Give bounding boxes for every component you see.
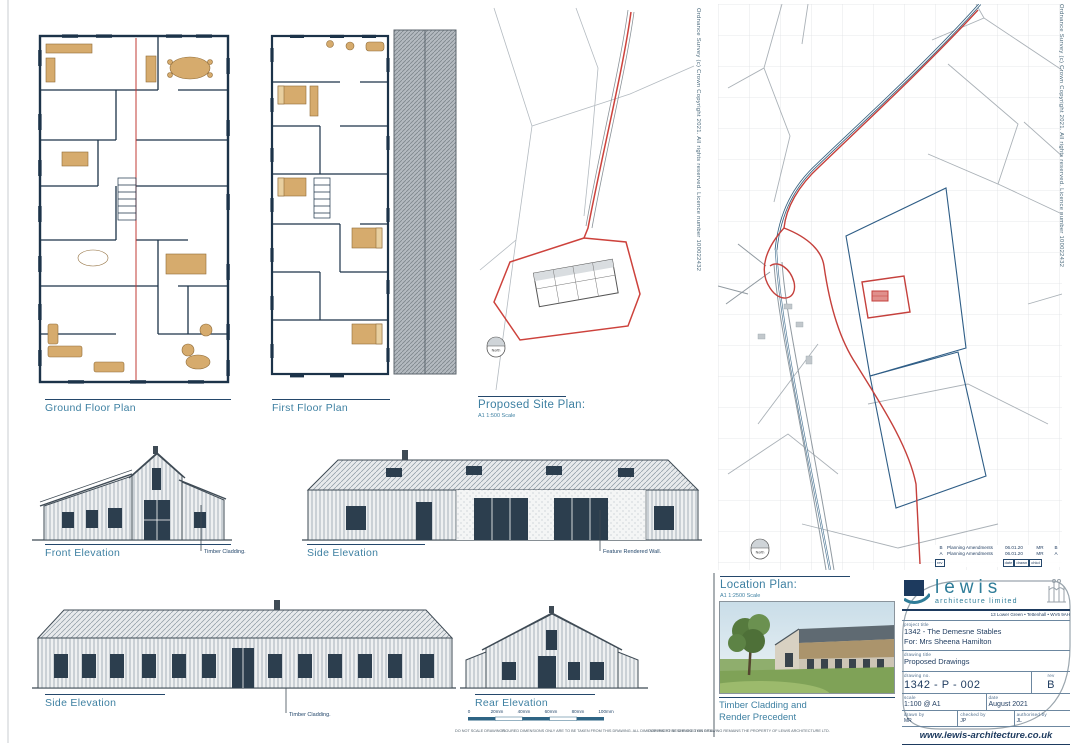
drawing-title-value: Proposed Drawings	[904, 657, 1068, 667]
ground-floor-plan-label: Ground Floor Plan	[45, 399, 231, 414]
logo-name: lewis	[935, 578, 1018, 597]
location-plan-map: North	[718, 4, 1062, 570]
logo-row: lewis architecture limited	[902, 576, 1070, 607]
front-elevation-text: Front Elevation	[45, 547, 120, 559]
site-plan-text: Proposed Site Plan:	[478, 399, 585, 411]
rev-value: B	[1034, 678, 1068, 691]
rev-header-drawn: drawn	[1014, 559, 1029, 567]
project-for-value: For: Mrs Sheena Hamilton	[904, 637, 1068, 647]
authorised-by-value: JL	[1017, 717, 1068, 724]
drawn-by-field: drawn by MR	[902, 711, 957, 726]
footer-note-1: DO NOT SCALE DRAWINGS.	[455, 729, 506, 733]
scale-tick-0: 0	[468, 709, 471, 714]
site-plan-label: Proposed Site Plan:	[478, 396, 566, 411]
location-plan-scale: A1 1:2500 Scale	[720, 593, 760, 599]
drawing-title-field: drawing title Proposed Drawings	[902, 650, 1070, 670]
precedent-caption: Timber Cladding and Render Precedent	[719, 697, 895, 725]
lower-cladding-note: Timber Cladding.	[289, 712, 331, 718]
proposed-building-footprint	[533, 259, 618, 306]
front-cladding-note: Timber Cladding.	[204, 549, 246, 555]
side-elevation-upper-label: Side Elevation	[307, 544, 425, 559]
os-copyright-right: Ordnance Survey (c) Crown Copyright 2021…	[1058, 4, 1064, 267]
rear-elevation-label: Rear Elevation	[475, 694, 595, 709]
ground-floor-plan-text: Ground Floor Plan	[45, 402, 136, 414]
date-value: August 2021	[989, 700, 1069, 708]
drawing-no-value: 1342 - P - 002	[904, 678, 1029, 691]
checked-by-value: JP	[960, 717, 1011, 724]
location-plan-text: Location Plan:	[720, 579, 797, 591]
rev-header-rev: rev	[935, 559, 945, 567]
drawn-by-value: MR	[904, 717, 955, 724]
site-building-marker	[872, 291, 888, 301]
project-title-value: 1342 - The Demesne Stables	[904, 627, 1068, 637]
rear-elevation-drawing	[460, 606, 648, 688]
north-arrow-icon: North	[751, 539, 769, 559]
practice-address: 13 Lower Green • Tettenhall • WV6 9AH	[902, 611, 1070, 620]
rear-elevation-text: Rear Elevation	[475, 697, 548, 709]
proposed-site-plan-drawing: North	[480, 8, 694, 390]
north-label: North	[756, 551, 765, 555]
os-copyright-left: Ordnance Survey (c) Crown Copyright 2021…	[695, 8, 701, 271]
first-floor-plan-drawing	[270, 30, 456, 377]
drawing-sheet: North	[0, 0, 1073, 743]
drawing-no-field: drawing no. 1342 - P - 002	[902, 672, 1031, 693]
project-title-field: project title 1342 - The Demesne Stables…	[902, 620, 1070, 650]
rev-by: MR	[1031, 551, 1049, 557]
gates-crest-icon	[1046, 578, 1068, 604]
scale-tick-1: 20mm	[491, 709, 504, 714]
location-plan-label: Location Plan:	[720, 576, 850, 591]
rev-header-chkd: chkd	[1029, 559, 1041, 567]
checked-by-field: checked by JP	[957, 711, 1013, 726]
rev-date: 06.01.20	[1005, 551, 1031, 557]
first-floor-plan-label: First Floor Plan	[272, 399, 390, 414]
ground-floor-plan-drawing	[38, 34, 230, 383]
title-block: lewis architecture limited 13 Lower Gree…	[902, 576, 1070, 745]
side-elevation-upper-text: Side Elevation	[307, 547, 378, 559]
side-elevation-upper-drawing	[302, 450, 702, 540]
front-elevation-drawing	[32, 446, 232, 540]
lewis-logo-mark-icon	[904, 578, 930, 606]
scale-field: scale 1:100 @ A1	[902, 694, 986, 710]
side-elevation-lower-label: Side Elevation	[45, 694, 165, 709]
scale-value: 1:100 @ A1	[904, 700, 984, 708]
north-arrow-icon: North	[487, 337, 505, 357]
drawing-no-row: drawing no. 1342 - P - 002 rev B	[902, 671, 1070, 693]
first-floor-plan-text: First Floor Plan	[272, 402, 348, 414]
revision-table-headers: rev date drawn chkd	[935, 559, 1065, 567]
side-elevation-lower-drawing	[32, 600, 456, 688]
scale-tick-3: 60mm	[545, 709, 558, 714]
website-link: www.lewis-architecture.co.uk	[902, 726, 1070, 745]
precedent-caption-line2: Render Precedent	[719, 712, 895, 724]
revision-table: B Planning Amendments 06.01.20 MR B A Pl…	[935, 545, 1065, 567]
date-field: date August 2021	[986, 694, 1071, 710]
feature-render-note: Feature Rendered Wall.	[603, 549, 661, 555]
north-label: North	[492, 349, 501, 353]
rev-field: rev B	[1031, 672, 1070, 693]
scale-bar	[468, 717, 604, 721]
site-plan-scale: A1 1:500 Scale	[478, 413, 515, 419]
footer-note-3: COPYRIGHT RESERVED. THIS DRAWING REMAINS…	[648, 729, 830, 733]
scale-tick-5: 100mm	[598, 709, 613, 714]
revision-row: A Planning Amendments 06.01.20 MR A	[935, 551, 1065, 557]
precedent-caption-line1: Timber Cladding and	[719, 700, 895, 712]
logo-text: lewis architecture limited	[935, 578, 1018, 605]
scale-date-row: scale 1:100 @ A1 date August 2021	[902, 693, 1070, 710]
precedent-photo	[687, 601, 895, 711]
rev-chk: A	[1049, 551, 1063, 557]
rev-letter: A	[935, 551, 947, 557]
scale-tick-4: 80mm	[572, 709, 585, 714]
rev-desc: Planning Amendments	[947, 551, 1005, 557]
authorised-by-field: authorised by JL	[1014, 711, 1070, 726]
credits-row: drawn by MR checked by JP authorised by …	[902, 710, 1070, 726]
logo-subtitle: architecture limited	[935, 598, 1018, 605]
side-elevation-lower-text: Side Elevation	[45, 697, 116, 709]
scale-tick-2: 40mm	[518, 709, 531, 714]
rev-header-date: date	[1003, 559, 1015, 567]
